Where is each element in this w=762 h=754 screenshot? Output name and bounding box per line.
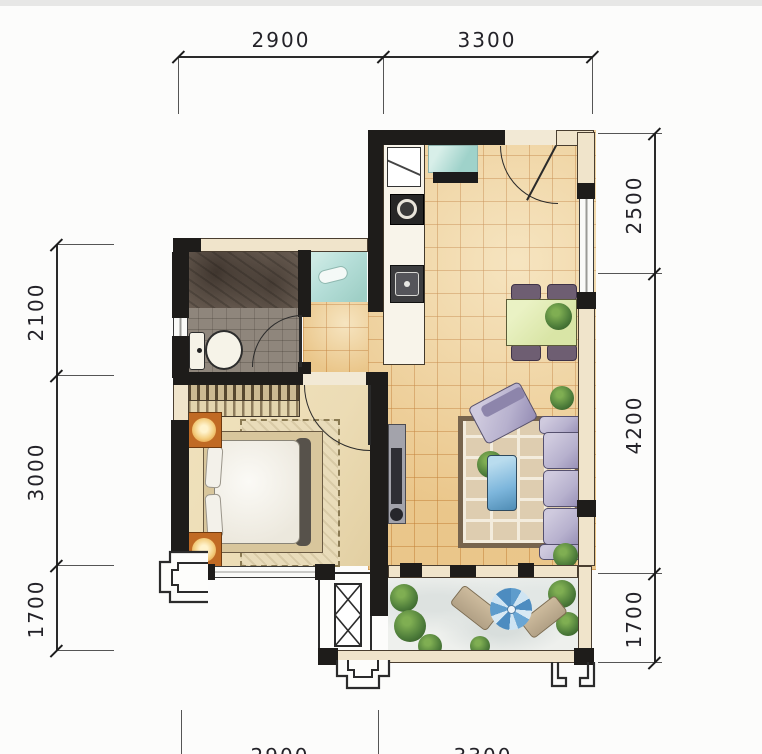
living-window-right bbox=[579, 197, 594, 294]
dim-label-right-1: 2500 bbox=[622, 160, 646, 250]
bedroom-door-threshold bbox=[303, 372, 368, 385]
dim-label-bottom-2: 3300 bbox=[438, 744, 528, 754]
stove-burner bbox=[397, 199, 417, 219]
dim-extension bbox=[181, 710, 182, 754]
ac-shaft-x-panel bbox=[334, 583, 362, 647]
hallway-floor bbox=[303, 302, 368, 374]
toilet-bowl bbox=[205, 330, 243, 370]
bathroom-top-wall bbox=[173, 238, 368, 252]
dim-extension bbox=[56, 650, 114, 651]
balcony-right-rail bbox=[578, 566, 592, 650]
bed-duvet bbox=[214, 440, 300, 544]
dining-chair bbox=[547, 344, 577, 361]
dim-label-right-3: 1700 bbox=[622, 574, 646, 664]
dim-extension bbox=[378, 710, 379, 754]
dim-label-right-2: 4200 bbox=[622, 380, 646, 470]
right-wall-mid bbox=[578, 308, 595, 502]
dim-label-left-2: 3000 bbox=[24, 427, 48, 517]
ledge-bracket-bottom bbox=[334, 660, 392, 692]
parasol-center bbox=[507, 605, 516, 614]
balcony-plant bbox=[390, 584, 418, 612]
kitchen-top-wall bbox=[373, 130, 505, 145]
table-plant bbox=[545, 303, 572, 330]
bedroom-window bbox=[213, 566, 317, 578]
bath-corner-block bbox=[173, 238, 201, 252]
range-hood bbox=[433, 172, 478, 183]
bathroom-door-leaf bbox=[299, 315, 302, 367]
fridge bbox=[387, 147, 421, 187]
wardrobe-upper bbox=[187, 384, 300, 401]
entry-threshold bbox=[505, 130, 556, 145]
slider-panel bbox=[518, 563, 534, 577]
dining-chair bbox=[511, 344, 541, 361]
bedroom-right-wall bbox=[370, 378, 388, 568]
dim-extension bbox=[178, 56, 179, 114]
bedroom-bottom-wall-right bbox=[315, 564, 335, 580]
dim-extension bbox=[56, 375, 114, 376]
tv-speaker bbox=[390, 508, 403, 521]
ledge-bracket-right bbox=[544, 662, 602, 690]
right-wall-low bbox=[578, 516, 595, 566]
right-wall-block-1 bbox=[577, 292, 596, 309]
floor-plan-canvas: 2900 3300 2100 3000 1700 2500 4200 1700 … bbox=[0, 0, 762, 754]
dim-extension bbox=[592, 56, 593, 114]
bathroom-floor-upper bbox=[184, 252, 300, 310]
kitchen-window-sill bbox=[428, 145, 478, 173]
right-wall-block-top bbox=[577, 183, 595, 199]
ledge-bracket-left bbox=[156, 549, 208, 609]
coffee-table bbox=[487, 455, 517, 511]
bedroom-door-leaf bbox=[368, 385, 371, 445]
toilet-flush-dot bbox=[197, 348, 202, 353]
dim-extension bbox=[56, 565, 114, 566]
slider-panel bbox=[450, 565, 476, 577]
slider-panel bbox=[400, 563, 422, 577]
living-balcony-corner bbox=[370, 558, 388, 616]
bed-pillow bbox=[205, 445, 224, 488]
bath-right-wall bbox=[298, 250, 311, 317]
left-wall-upper bbox=[172, 252, 189, 318]
dim-label-left-3: 1700 bbox=[24, 564, 48, 654]
dim-line-right bbox=[654, 133, 656, 662]
bath-bedroom-divider bbox=[173, 372, 303, 385]
right-wall-post bbox=[577, 132, 595, 187]
kitchen-left-wall bbox=[368, 130, 383, 312]
nightstand-lamp bbox=[192, 418, 216, 442]
dim-line-left bbox=[56, 244, 58, 650]
scan-edge-strip bbox=[0, 0, 762, 6]
sofa-seat bbox=[543, 432, 583, 469]
dim-label-left-1: 2100 bbox=[24, 267, 48, 357]
sink-drain-dot bbox=[404, 281, 410, 287]
dim-extension bbox=[56, 244, 114, 245]
corner-plant bbox=[550, 386, 574, 410]
right-wall-block-2 bbox=[577, 500, 596, 517]
dim-label-top-1: 2900 bbox=[236, 28, 326, 52]
dim-extension bbox=[383, 56, 384, 114]
dim-label-top-2: 3300 bbox=[442, 28, 532, 52]
dim-label-bottom-1: 2900 bbox=[235, 744, 325, 754]
tv-screen bbox=[391, 448, 402, 504]
bathroom-window bbox=[173, 316, 188, 338]
